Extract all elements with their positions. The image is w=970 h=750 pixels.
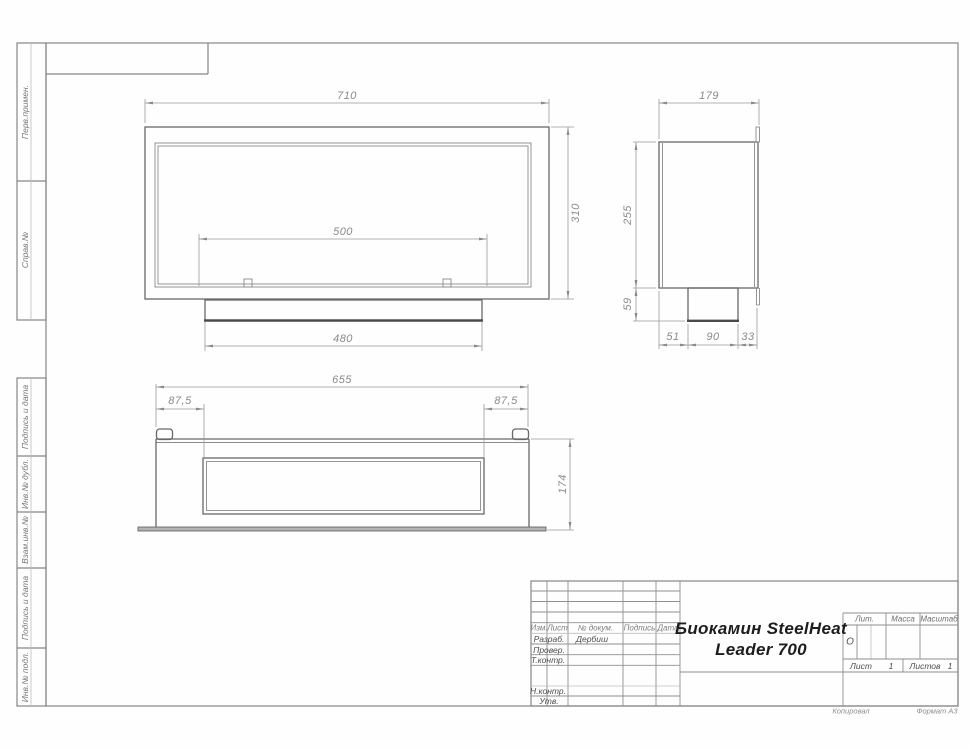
margin-label-perv-primen: Перв.примен.: [20, 85, 30, 139]
footer-format: Формат А3: [916, 707, 957, 716]
tb-col-dokum: № докум.: [578, 624, 613, 633]
dim-side-seg-mid: 90: [706, 331, 719, 343]
tb-scale-header: Масштаб: [920, 615, 957, 624]
dim-side-tray-height: 59: [622, 297, 634, 310]
dim-bottom-length: 655: [332, 374, 352, 386]
tb-col-izm: Изм.: [530, 624, 547, 633]
tb-developer: Дербиш: [576, 634, 608, 644]
tb-col-podpis: Подпись: [624, 624, 656, 633]
tb-mass-header: Масса: [891, 615, 915, 624]
side-view: [633, 99, 760, 349]
margin-label-podpis-data-2: Подпись и дата: [20, 576, 30, 640]
doc-title-line1: Биокамин SteelHeat: [675, 619, 847, 639]
tb-sheets-label: Листов: [910, 661, 941, 671]
dim-side-seg-back: 33: [741, 331, 754, 343]
tb-role-nkontr: Н.контр.: [530, 686, 566, 696]
tb-col-list: Лист: [547, 624, 568, 633]
tb-role-prover: Провер.: [533, 645, 565, 655]
dim-front-height: 310: [570, 203, 582, 223]
margin-label-inv-dubl: Инв.№ дубл.: [20, 459, 30, 509]
margin-label-vzam-inv: Взам.инв.№: [20, 516, 30, 564]
margin-label-podpis-data-1: Подпись и дата: [20, 385, 30, 449]
dim-side-seg-front: 51: [666, 331, 679, 343]
dim-bottom-height: 174: [557, 474, 569, 494]
dim-front-burner-width: 500: [333, 226, 353, 238]
tb-role-utv: Утв.: [539, 696, 558, 706]
dim-front-width: 710: [337, 90, 357, 102]
footer-copied-by: Копировал: [832, 707, 869, 716]
drawing-sheet: Перв.примен. Справ.№ Подпись и дата Инв.…: [0, 0, 970, 750]
tb-sheet-label: Лист: [850, 661, 872, 671]
tb-sheets-total: 1: [948, 661, 953, 671]
tb-role-razrab: Разраб.: [534, 634, 565, 644]
dim-side-depth: 179: [699, 90, 719, 102]
doc-title-line2: Leader 700: [715, 640, 807, 660]
margin-label-inv-podl: Инв.№ подл.: [20, 652, 30, 702]
tb-role-tkontr: Т.контр.: [531, 655, 565, 665]
dim-bottom-offset-right: 87,5: [494, 395, 517, 407]
sheet-frame: [17, 43, 958, 706]
dim-bottom-offset-left: 87,5: [168, 395, 191, 407]
tb-lit-value: О: [846, 637, 854, 648]
dim-side-body-height: 255: [622, 205, 634, 225]
dim-front-tray-width: 480: [333, 333, 353, 345]
margin-label-sprav-no: Справ.№: [20, 232, 30, 268]
tb-sheet-no: 1: [889, 661, 894, 671]
front-view: [145, 99, 574, 351]
tb-lit-header: Лит.: [855, 615, 874, 624]
